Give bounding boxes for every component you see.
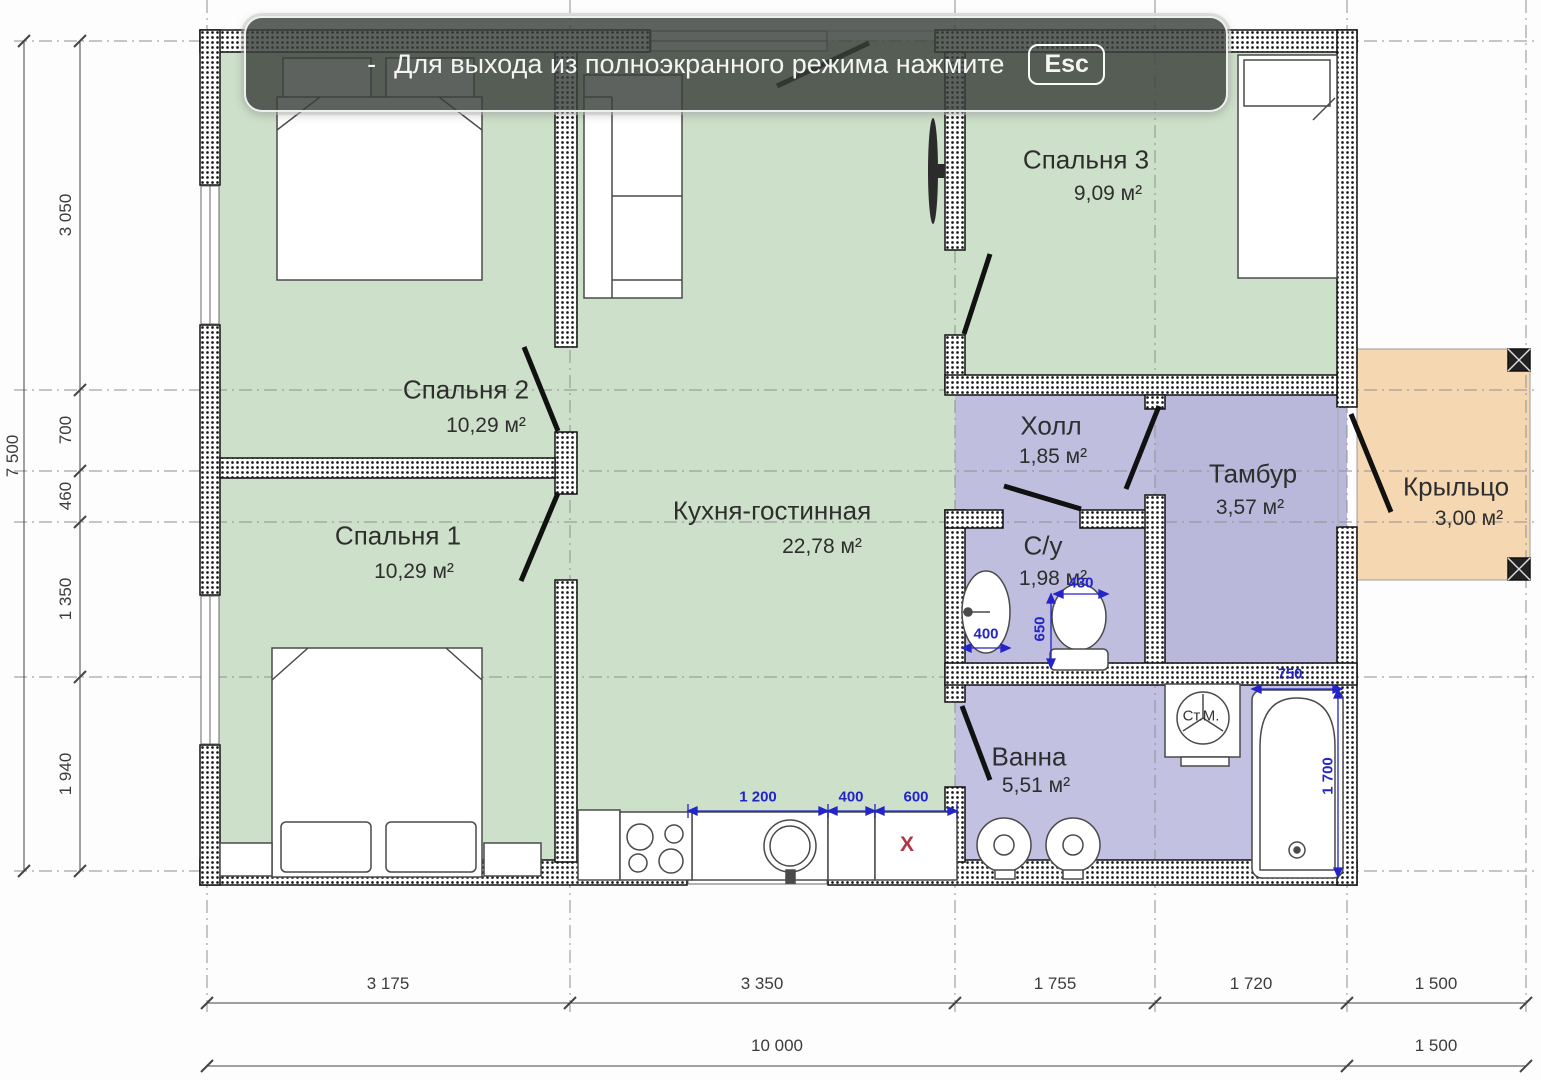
room-label-bathroom: Ванна [992,742,1067,773]
dim-horizontal-2: 3 350 [741,974,784,994]
room-label-porch: Крыльцо [1403,472,1509,503]
washing-machine-icon [1165,684,1240,766]
dim-horizontal-total: 10 000 [751,1036,803,1056]
dim-kitchen-1200: 1 200 [739,789,777,806]
dim-horizontal-4: 1 720 [1230,974,1273,994]
floor-plan-drawing [0,0,1541,1080]
dim-wc-toilet-650: 650 [1032,616,1049,641]
room-area-kitchen-living: 22,78 м² [782,535,862,559]
dim-horizontal-1: 3 175 [367,974,410,994]
room-label-kitchen-living: Кухня-гостинная [673,496,871,527]
window-bedroom2-icon [201,186,219,324]
dim-bath-tub-750: 750 [1277,666,1302,683]
stove-icon [620,812,692,880]
room-area-bedroom3: 9,09 м² [1074,182,1142,206]
room-area-bedroom1: 10,29 м² [374,560,454,584]
dim-horizontal-porch: 1 500 [1415,1036,1458,1056]
room-area-bathroom: 5,51 м² [1002,774,1070,798]
room-label-hall: Холл [1020,411,1081,442]
window-bedroom1-icon [201,596,219,744]
banner-message: Для выхода из полноэкранного режима нажм… [394,49,1004,80]
room-label-wc: С/у [1024,531,1063,562]
dim-horizontal-5: 1 500 [1415,974,1458,994]
dim-vertical-3: 460 [56,482,76,510]
room-area-bedroom2: 10,29 м² [446,414,526,438]
dim-vertical-total: 7 500 [3,435,23,478]
room-label-vestibule: Тамбур [1209,459,1297,490]
room-area-vestibule: 3,57 м² [1216,496,1284,520]
bed-single-bedroom3-icon [1238,55,1337,278]
fullscreen-exit-banner: - Для выхода из полноэкранного режима на… [244,16,1228,112]
dim-vertical-1: 3 050 [56,194,76,237]
room-area-hall: 1,85 м² [1019,445,1087,469]
dim-kitchen-400: 400 [838,789,863,806]
room-label-bedroom1: Спальня 1 [335,521,461,552]
dim-kitchen-600: 600 [903,789,928,806]
banner-dash: - [367,49,376,80]
removed-appliance-marker: Х [900,833,914,857]
esc-key-hint: Esc [1028,44,1104,85]
dim-bath-tub-1700: 1 700 [1320,757,1337,795]
dim-horizontal-3: 1 755 [1034,974,1077,994]
room-label-bedroom3: Спальня 3 [1023,145,1149,176]
dim-vertical-5: 1 940 [56,753,76,796]
dim-vertical-4: 1 350 [56,578,76,621]
dim-wc-sink-400: 400 [973,626,998,643]
room-label-bedroom2: Спальня 2 [403,375,529,406]
washing-machine-label: Ст.М. [1183,708,1220,725]
floor-plan-canvas[interactable]: Спальня 2 10,29 м² Спальня 1 10,29 м² Сп… [0,0,1541,1080]
dim-vertical-2: 700 [56,416,76,444]
room-area-porch: 3,00 м² [1435,507,1503,531]
dim-wc-toilet-430: 430 [1068,575,1093,592]
